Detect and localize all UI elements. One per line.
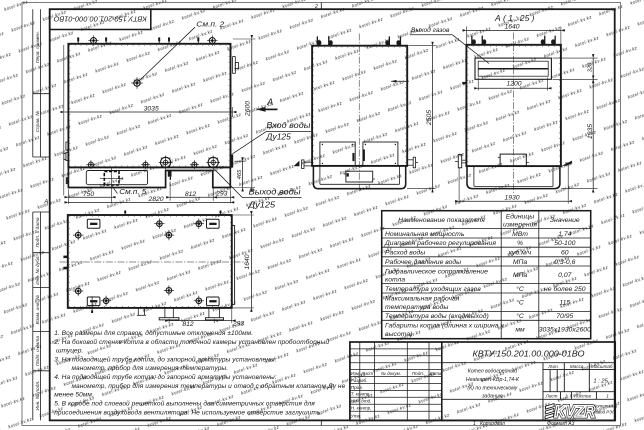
- svg-text:Лист: Лист: [545, 394, 558, 399]
- svg-text:1,74: 1,74: [558, 231, 571, 238]
- svg-text:температура воды: температура воды: [385, 303, 448, 311]
- svg-text:3. На подводящей трубе котла,: 3. На подводящей трубе котла, до запорно…: [54, 356, 277, 364]
- svg-text:МВт: МВт: [512, 231, 528, 238]
- svg-text:Пров.: Пров.: [351, 385, 363, 390]
- svg-text:812: 812: [182, 321, 194, 328]
- svg-text:№ докум.: № докум.: [381, 371, 401, 376]
- svg-text:KVZR: KVZR: [555, 402, 596, 421]
- svg-text:750: 750: [83, 191, 95, 198]
- svg-text:4. На подводящей трубе котла,: 4. На подводящей трубе котла, до запорно…: [54, 373, 277, 381]
- svg-text:Ду125: Ду125: [265, 133, 291, 142]
- svg-text:293: 293: [215, 190, 228, 197]
- svg-text:штуцер.: штуцер.: [56, 348, 83, 355]
- svg-text:812: 812: [185, 191, 197, 198]
- svg-text:измерения: измерения: [503, 222, 537, 229]
- svg-text:Вход воды: Вход воды: [266, 121, 310, 130]
- svg-text:1640: 1640: [504, 24, 519, 31]
- svg-text:2820: 2820: [147, 196, 163, 203]
- svg-text:А ( 1 : 25 ): А ( 1 : 25 ): [494, 13, 535, 23]
- svg-text:70/95: 70/95: [556, 313, 573, 320]
- svg-text:Утв.: Утв.: [351, 414, 361, 419]
- svg-text:Номинальная мощность: Номинальная мощность: [385, 231, 465, 238]
- svg-text:50-100: 50-100: [554, 240, 575, 247]
- svg-text:завод РЭП: завод РЭП: [593, 410, 617, 415]
- svg-text:Выход воды: Выход воды: [249, 188, 301, 197]
- svg-text:115: 115: [559, 300, 570, 307]
- svg-text:(К) по техническому: (К) по техническому: [467, 385, 517, 391]
- svg-text:Максимальная рабочая: Максимальная рабочая: [385, 295, 460, 303]
- svg-text:1930: 1930: [504, 194, 519, 201]
- svg-text:Дата: Дата: [428, 371, 442, 376]
- svg-text:Подп. и дата: Подп. и дата: [35, 217, 41, 247]
- svg-text:Гидравлическое сопротивление: Гидравлическое сопротивление: [385, 267, 488, 275]
- svg-text:Котел водогрейный: Котел водогрейный: [468, 367, 517, 374]
- svg-text:°С: °С: [516, 312, 524, 320]
- svg-text:Н. контр.: Н. контр.: [351, 406, 372, 411]
- svg-text:Выход газов: Выход газов: [411, 26, 450, 34]
- svg-text:Разраб.: Разраб.: [351, 378, 368, 383]
- svg-text:Взам. инв. №: Взам. инв. №: [35, 295, 41, 325]
- svg-text:Подп.: Подп.: [412, 371, 424, 376]
- svg-text:2. На боковой стенке котла в о: 2. На боковой стенке котла в области топ…: [53, 338, 329, 346]
- svg-text:Расход воды: Расход воды: [385, 249, 425, 257]
- svg-text:Единицы: Единицы: [506, 213, 534, 221]
- svg-text:Котельный: Котельный: [594, 404, 618, 409]
- svg-text:КВТУ.150.201.00.000-01ВО: КВТУ.150.201.00.000-01ВО: [473, 349, 586, 358]
- svg-text:Изм: Изм: [351, 371, 360, 376]
- svg-text:Габариты котла (длинна х ширин: Габариты котла (длинна х ширина х: [385, 322, 504, 330]
- svg-text:Лист: Лист: [360, 371, 373, 376]
- svg-text:высота): высота): [385, 331, 412, 338]
- svg-text:мм: мм: [515, 327, 525, 334]
- svg-text:не более 250: не более 250: [544, 285, 586, 293]
- svg-text:Heatexpert-КВр-1,74-К: Heatexpert-КВр-1,74-К: [466, 377, 520, 383]
- svg-text:Масштаб: Масштаб: [591, 364, 613, 369]
- svg-text:Рабочее давление воды: Рабочее давление воды: [385, 258, 461, 266]
- svg-text:Температура воды (вход/выход): Температура воды (вход/выход): [385, 312, 489, 320]
- svg-text:0,07: 0,07: [558, 272, 571, 279]
- svg-text:5. В коробе под слоевой решетк: 5. В коробе под слоевой решеткой выполне…: [54, 400, 315, 408]
- svg-text:465: 465: [237, 169, 243, 179]
- svg-text:КВТУ.150.201.00.000-01ВО: КВТУ.150.201.00.000-01ВО: [53, 14, 146, 23]
- svg-text:2505: 2505: [426, 110, 433, 126]
- svg-text:котла: котла: [385, 277, 405, 284]
- svg-text:заданию: заданию: [481, 393, 503, 399]
- svg-text:Т. контр.: Т. контр.: [351, 392, 371, 397]
- svg-text:Перв. примен.: Перв. примен.: [35, 31, 41, 63]
- svg-text:1. Все размеры для справок, до: 1. Все размеры для справок, допустимые о…: [54, 329, 253, 337]
- svg-text:А: А: [43, 199, 48, 205]
- svg-text:манометр, прибор для измерения: манометр, прибор для измерения температу…: [72, 364, 229, 372]
- svg-text:60: 60: [561, 250, 569, 257]
- svg-text:Наименование показателя: Наименование показателя: [398, 217, 485, 224]
- svg-text:Подп. и дата: Подп. и дата: [35, 336, 41, 366]
- svg-text:См.п. 2: См.п. 2: [196, 19, 225, 28]
- svg-text:Инв. № подл.: Инв. № подл.: [35, 381, 41, 411]
- svg-text:2: 2: [314, 4, 318, 10]
- svg-text:Масса: Масса: [570, 364, 584, 369]
- svg-text:Копировал: Копировал: [480, 421, 505, 427]
- svg-text:присоединения воздуховода вент: присоединения воздуховода вентилятора. Н…: [54, 409, 322, 417]
- svg-text:1: 1: [473, 421, 476, 427]
- svg-text:1200: 1200: [506, 80, 521, 87]
- svg-text:См.п. 5: См.п. 5: [119, 187, 147, 196]
- svg-text:А: А: [266, 97, 273, 107]
- svg-text:Листов: Листов: [573, 394, 591, 399]
- svg-text:Формат А3: Формат А3: [547, 421, 575, 427]
- svg-text:1: 1: [606, 394, 609, 399]
- svg-text:293: 293: [232, 320, 245, 327]
- svg-text:Справ. №: Справ. №: [35, 111, 41, 133]
- svg-text:Температура уходящих газов: Температура уходящих газов: [385, 285, 481, 293]
- svg-text:Лит.: Лит.: [547, 364, 559, 369]
- svg-text:куб.м/ч: куб.м/ч: [509, 249, 532, 257]
- svg-text:менее 50мм.: менее 50мм.: [54, 392, 94, 399]
- svg-text:Значение: Значение: [550, 217, 580, 224]
- svg-text:Инв. № дубл.: Инв. № дубл.: [35, 255, 41, 285]
- svg-text:3035: 3035: [144, 105, 159, 112]
- svg-text:°С: °С: [516, 299, 524, 307]
- svg-text:0,3-0,6: 0,3-0,6: [554, 259, 575, 266]
- svg-text:манометр, прибор для измерения: манометр, прибор для измерения температу…: [72, 382, 346, 390]
- svg-text:Диапазон рабочего регулировани: Диапазон рабочего регулирования: [384, 239, 496, 247]
- svg-text:°С: °С: [516, 285, 524, 293]
- svg-text:320: 320: [588, 62, 594, 72]
- svg-text:Нач. отд.: Нач. отд.: [351, 399, 372, 404]
- svg-text:МПа: МПа: [513, 259, 528, 266]
- svg-text:Ду125: Ду125: [247, 200, 275, 209]
- svg-text:1640: 1640: [244, 254, 251, 269]
- svg-text:%: %: [517, 240, 523, 247]
- svg-text:3035х1930х2600: 3035х1930х2600: [539, 327, 591, 334]
- svg-text:МПа: МПа: [513, 272, 528, 279]
- svg-text:2600: 2600: [245, 101, 252, 117]
- svg-text:1 : 25: 1 : 25: [593, 378, 608, 384]
- svg-text:1: 1: [565, 394, 568, 399]
- svg-text:1935: 1935: [587, 124, 594, 139]
